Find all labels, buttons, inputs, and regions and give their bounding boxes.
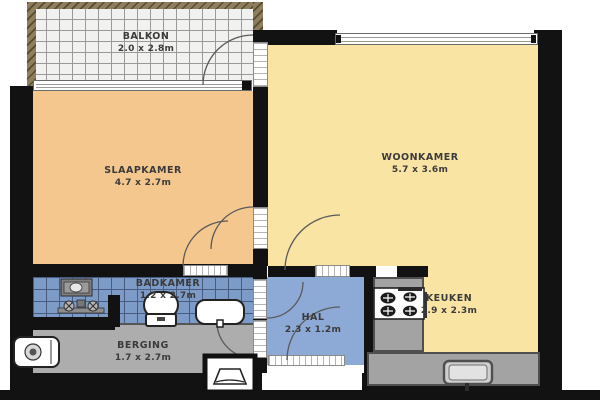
floor-plan: BALKON 2.0 x 2.8m SLAAPKAMER 4.7 x 2.7m … [0, 0, 600, 400]
washing-machine-icon [61, 279, 92, 296]
room-name: BADKAMER [108, 278, 228, 290]
room-name: KEUKEN [389, 293, 509, 305]
room-dims: 4.7 x 2.7m [83, 177, 203, 189]
room-dims: 1.7 x 2.7m [83, 352, 203, 364]
room-name: WOONKAMER [360, 152, 480, 164]
room-label-hal: HAL 2.3 x 1.2m [253, 312, 373, 336]
room-dims: 1.2 x 2.7m [108, 290, 228, 302]
room-label-slaapkamer: SLAAPKAMER 4.7 x 2.7m [83, 165, 203, 189]
slaapkamer-south-door-arc [183, 221, 228, 266]
boiler-icon [14, 337, 59, 367]
room-label-keuken: KEUKEN 2.9 x 2.3m [389, 293, 509, 317]
slaapkamer-door-arc [211, 207, 253, 249]
room-name: HAL [253, 312, 373, 324]
bathroom-sink-icon [196, 300, 244, 327]
room-dims: 5.7 x 3.6m [360, 164, 480, 176]
room-label-berging: BERGING 1.7 x 2.7m [83, 340, 203, 364]
room-dims: 2.0 x 2.8m [86, 43, 206, 55]
woonkamer-hal-door-arc [285, 215, 340, 270]
room-dims: 2.9 x 2.3m [389, 305, 509, 317]
kitchen-sink-icon [444, 361, 492, 391]
room-name: BALKON [86, 31, 206, 43]
balkon-door-arc [203, 35, 253, 85]
shower-mixer-icon [58, 300, 104, 313]
room-name: BERGING [83, 340, 203, 352]
room-label-woonkamer: WOONKAMER 5.7 x 3.6m [360, 152, 480, 176]
ventilation-box-icon [205, 356, 255, 392]
room-label-badkamer: BADKAMER 1.2 x 2.7m [108, 278, 228, 302]
room-dims: 2.3 x 1.2m [253, 324, 373, 336]
room-label-balkon: BALKON 2.0 x 2.8m [86, 31, 206, 55]
room-name: SLAAPKAMER [83, 165, 203, 177]
